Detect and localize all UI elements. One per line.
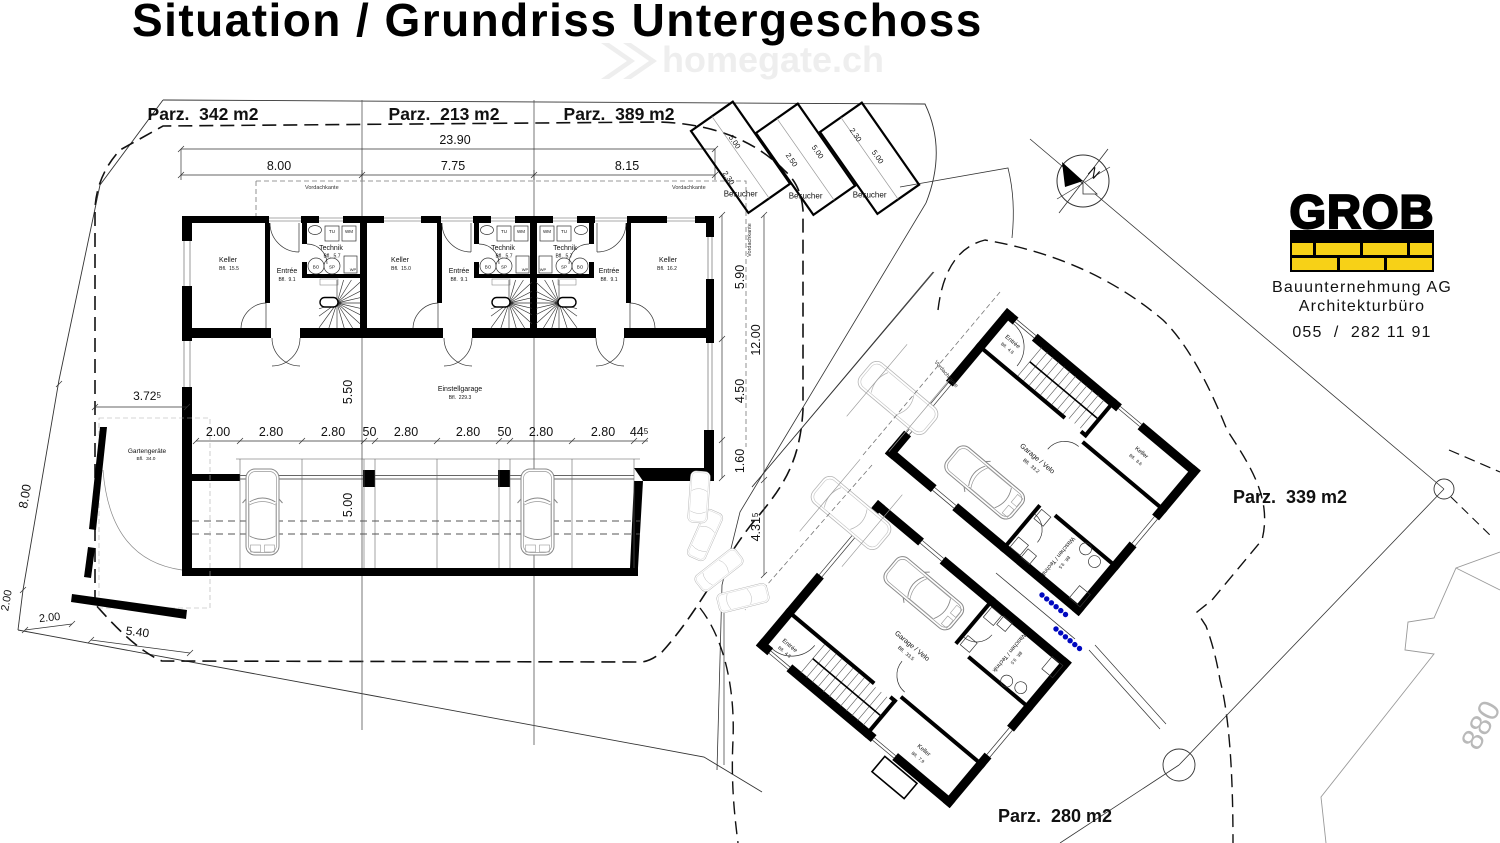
svg-text:2.80: 2.80 <box>321 425 345 439</box>
svg-text:Parz. 339 m2: Parz. 339 m2 <box>1233 487 1347 507</box>
svg-text:23.90: 23.90 <box>439 133 470 147</box>
svg-text:Besucher: Besucher <box>724 189 758 198</box>
svg-text:Keller: Keller <box>391 257 410 264</box>
svg-text:Bfl. 5.7: Bfl. 5.7 <box>556 254 573 260</box>
svg-text:SP: SP <box>561 265 567 270</box>
svg-text:2.80: 2.80 <box>591 425 615 439</box>
svg-text:Bfl. 5.7: Bfl. 5.7 <box>496 254 513 260</box>
svg-text:8.00: 8.00 <box>267 159 291 173</box>
svg-text:Architekturbüro: Architekturbüro <box>1299 298 1426 315</box>
svg-text:Bfl. 229.3: Bfl. 229.3 <box>449 395 472 401</box>
svg-text:Bauunternehmung AG: Bauunternehmung AG <box>1272 279 1452 296</box>
svg-text:Bfl. 15.0: Bfl. 15.0 <box>391 266 411 272</box>
svg-text:Vordachkante: Vordachkante <box>305 185 339 191</box>
svg-text:Einstellgarage: Einstellgarage <box>438 386 482 393</box>
svg-text:8.15: 8.15 <box>615 159 639 173</box>
svg-text:5.00: 5.00 <box>341 493 355 517</box>
svg-text:Parz. 213 m2: Parz. 213 m2 <box>389 104 500 124</box>
svg-text:Vordachkante: Vordachkante <box>747 223 753 257</box>
svg-text:50: 50 <box>498 425 512 439</box>
svg-text:TU: TU <box>561 229 567 234</box>
svg-text:Keller: Keller <box>659 257 678 264</box>
svg-text:Technik: Technik <box>553 245 577 252</box>
svg-text:Entrée: Entrée <box>449 268 470 275</box>
svg-text:Vordachkante: Vordachkante <box>672 185 706 191</box>
svg-text:SP: SP <box>501 265 507 270</box>
svg-text:BO: BO <box>577 265 584 270</box>
svg-text:5.50: 5.50 <box>341 380 355 404</box>
svg-text:1.60: 1.60 <box>733 449 747 473</box>
svg-text:Besucher: Besucher <box>789 191 823 200</box>
svg-text:TU: TU <box>329 229 335 234</box>
svg-text:2.00: 2.00 <box>206 425 230 439</box>
svg-text:SP: SP <box>329 265 335 270</box>
svg-text:Situation / Grundriss Unterges: Situation / Grundriss Untergeschoss <box>132 0 983 46</box>
svg-text:Bfl. 9.1: Bfl. 9.1 <box>601 277 618 283</box>
svg-text:BO: BO <box>485 265 492 270</box>
svg-text:Besucher: Besucher <box>853 190 887 199</box>
svg-text:Bfl. 9.1: Bfl. 9.1 <box>279 277 296 283</box>
svg-text:Bfl. 9.1: Bfl. 9.1 <box>451 277 468 283</box>
svg-text:TU: TU <box>501 229 507 234</box>
svg-text:Entrée: Entrée <box>599 268 620 275</box>
svg-text:Gartengeräte: Gartengeräte <box>128 448 167 455</box>
svg-text:Technik: Technik <box>319 245 343 252</box>
svg-text:WP: WP <box>522 267 529 272</box>
svg-text:WP: WP <box>350 267 357 272</box>
svg-text:Technik: Technik <box>491 245 515 252</box>
svg-text:Keller: Keller <box>219 257 238 264</box>
svg-text:7.75: 7.75 <box>441 159 465 173</box>
svg-text:2.80: 2.80 <box>456 425 480 439</box>
svg-text:WM: WM <box>543 229 551 234</box>
svg-text:2.80: 2.80 <box>394 425 418 439</box>
svg-text:2.00: 2.00 <box>38 611 61 625</box>
svg-text:2.80: 2.80 <box>259 425 283 439</box>
svg-text:5.90: 5.90 <box>733 265 747 289</box>
svg-text:12.00: 12.00 <box>749 324 763 355</box>
svg-text:WP: WP <box>540 267 547 272</box>
svg-text:Parz. 280 m2: Parz. 280 m2 <box>998 806 1112 826</box>
svg-text:2.80: 2.80 <box>529 425 553 439</box>
svg-text:5.40: 5.40 <box>125 624 150 641</box>
svg-text:Bfl. 5.7: Bfl. 5.7 <box>324 254 341 260</box>
svg-text:Bfl. 34.0: Bfl. 34.0 <box>137 456 156 462</box>
svg-text:4.50: 4.50 <box>733 379 747 403</box>
svg-text:50: 50 <box>363 425 377 439</box>
svg-text:WM: WM <box>517 229 525 234</box>
svg-text:WM: WM <box>345 229 353 234</box>
svg-text:BO: BO <box>313 265 320 270</box>
svg-text:Entrée: Entrée <box>277 268 298 275</box>
svg-text:Parz. 342 m2: Parz. 342 m2 <box>148 104 259 124</box>
svg-text:Bfl. 15.5: Bfl. 15.5 <box>219 266 239 272</box>
svg-text:Parz. 389 m2: Parz. 389 m2 <box>564 104 675 124</box>
svg-text:055 / 282 11 91: 055 / 282 11 91 <box>1292 324 1431 341</box>
svg-text:Bfl. 16.2: Bfl. 16.2 <box>657 266 677 272</box>
